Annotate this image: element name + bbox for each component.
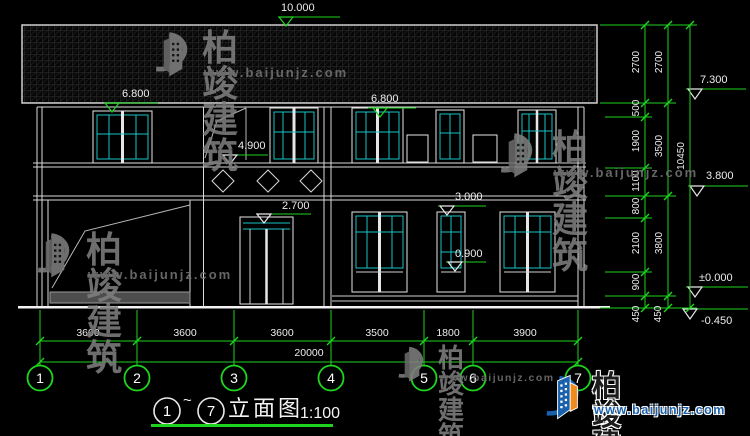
window [270, 108, 318, 163]
level-label-right-floor2: 3.800 [706, 171, 734, 182]
window [436, 110, 464, 163]
dim-label: 2700 [632, 40, 642, 84]
window [352, 108, 403, 163]
first-floor-windows [352, 212, 555, 292]
watermark-logo-icon [145, 26, 201, 82]
dim-label: 3900 [513, 328, 537, 339]
dim-label: 1900 [632, 119, 642, 163]
level-triangle [690, 186, 704, 196]
dim-label: 2100 [632, 221, 642, 265]
dim-label: 3800 [655, 221, 665, 265]
watermark-logo-icon [490, 126, 546, 184]
drawing-title: 立面图 [228, 398, 303, 420]
axis-label-1: 1 [27, 371, 53, 385]
roof [22, 25, 597, 103]
brand-logo-icon [536, 368, 590, 426]
dim-label: 3600 [173, 328, 197, 339]
dim-label: 450 [632, 292, 642, 336]
watermark-logo-icon [27, 226, 83, 284]
brand-logo-url: www.baijunjz.com [594, 404, 726, 417]
watermark-brand: 柏竣建筑 [86, 232, 126, 376]
level-triangle [440, 206, 454, 215]
watermark-logo-icon [390, 341, 434, 387]
dim-label-total-width: 20000 [279, 348, 339, 359]
watermark-url: www.baijunjz.com [88, 268, 232, 281]
level-label-ridge: 10.000 [281, 3, 315, 14]
watermark-brand: 柏竣建筑 [202, 30, 242, 174]
sill-band [332, 296, 578, 301]
axis-label-3: 3 [221, 371, 247, 385]
axis-label-4: 4 [318, 371, 344, 385]
level-label-eave-left: 6.800 [122, 89, 150, 100]
level-label-door-head: 2.700 [282, 201, 310, 212]
axis-label-2: 2 [124, 371, 150, 385]
watermark-url: www.baijunjz.com [204, 66, 348, 79]
window [500, 212, 555, 292]
level-label-right-eave: 7.300 [700, 75, 728, 86]
level-triangle [448, 262, 462, 271]
dim-label: 1800 [436, 328, 460, 339]
level-label-sill: 0.900 [455, 249, 483, 260]
diamond-ornament [257, 170, 279, 192]
level-label-right-ground: ±0.000 [699, 273, 733, 284]
level-label-right-site: -0.450 [701, 316, 732, 327]
dim-label: 2700 [655, 40, 665, 84]
elevation-drawing-sheet: 10.000 6.800 6.800 4.900 2.700 3.000 0.9… [0, 0, 750, 436]
dim-label: 3500 [365, 328, 389, 339]
level-triangle [257, 214, 271, 223]
title-tilde: ~ [183, 393, 192, 408]
dim-label: 3500 [655, 124, 665, 168]
small-window [407, 135, 428, 162]
level-label-floor2: 3.000 [455, 192, 483, 203]
level-label-eave-right: 6.800 [371, 94, 399, 105]
title-axis-to: 7 [198, 404, 224, 419]
title-axis-from: 1 [154, 404, 180, 419]
watermark-brand: 柏竣建筑 [438, 345, 467, 436]
entry-door [240, 217, 293, 304]
window [352, 212, 407, 292]
level-label-stair: 4.900 [238, 141, 266, 152]
watermark-url: www.baijunjz.com [554, 166, 698, 179]
diamond-ornament [300, 170, 322, 192]
dim-label: 3600 [270, 328, 294, 339]
drawing-scale: 1:100 [300, 406, 340, 422]
window [93, 111, 152, 163]
dim-label: 450 [654, 292, 664, 336]
watermark-brand: 柏竣建筑 [552, 130, 592, 274]
level-triangle [683, 309, 697, 319]
